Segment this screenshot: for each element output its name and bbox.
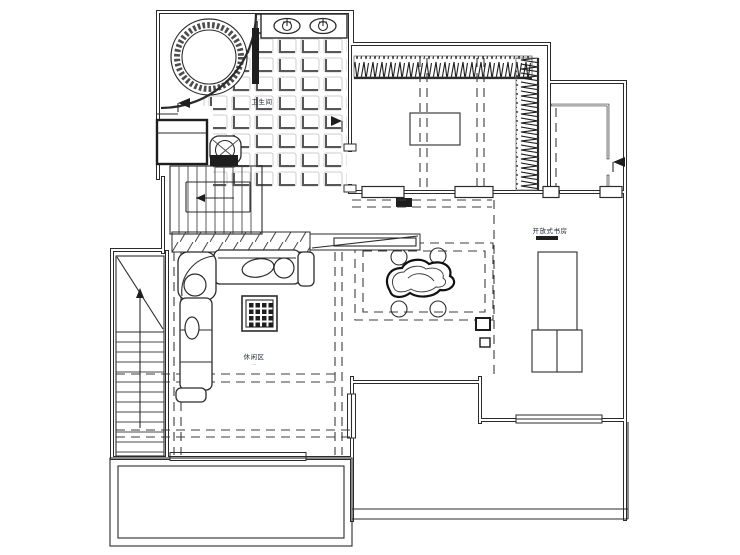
sink-left (274, 19, 300, 34)
decor-stone (387, 260, 454, 297)
throw-pillow (184, 274, 206, 296)
wall-stub (396, 198, 412, 207)
wall-post (252, 28, 259, 84)
window-leisure-south (170, 453, 306, 461)
wardrobe-hatch-top (354, 56, 532, 78)
leisure-sublabel: ··· (252, 362, 256, 367)
floor-plan-drawing: 卫生间 ··· 休闲区 ··· 开放式书房 (0, 0, 740, 555)
windows (170, 394, 602, 461)
window-study-south (516, 415, 602, 423)
front-balcony (110, 458, 352, 546)
sofa-chaise (180, 298, 212, 390)
bathroom-sublabel: ··· (260, 107, 264, 112)
lower-staircase (116, 256, 164, 456)
throw-pillow (185, 317, 199, 339)
bed-table (410, 113, 460, 145)
jacuzzi-tub (171, 19, 247, 95)
study-label-underline (536, 236, 558, 240)
shelf-hatch-band (172, 232, 420, 252)
stair-landing-bar (210, 155, 238, 166)
side-balcony-strip (352, 422, 628, 519)
bathroom-label: 卫生间 (252, 97, 273, 106)
study-desk (538, 252, 577, 330)
downlight-circle (391, 301, 407, 317)
downlight-circle (430, 301, 446, 317)
sofa-armrest (176, 388, 206, 402)
double-sink-vanity (261, 14, 347, 38)
grid-coffee-table (242, 296, 277, 331)
study-chairs (532, 330, 582, 372)
sink-right (310, 19, 336, 34)
study-partition-wall (552, 105, 608, 187)
shower-cabinet (157, 114, 207, 164)
door-lintels (344, 144, 622, 207)
window-leisure-east (348, 394, 356, 438)
throw-pillow (274, 258, 294, 278)
study-label: 开放式书房 (533, 226, 568, 235)
leisure-label: 休闲区 (244, 352, 265, 361)
sofa-armrest (298, 252, 314, 286)
hall-columns (476, 318, 490, 347)
floor-plan-canvas: 卫生间 ··· 休闲区 ··· 开放式书房 (0, 0, 740, 555)
wardrobe-hatch-right (516, 58, 538, 190)
